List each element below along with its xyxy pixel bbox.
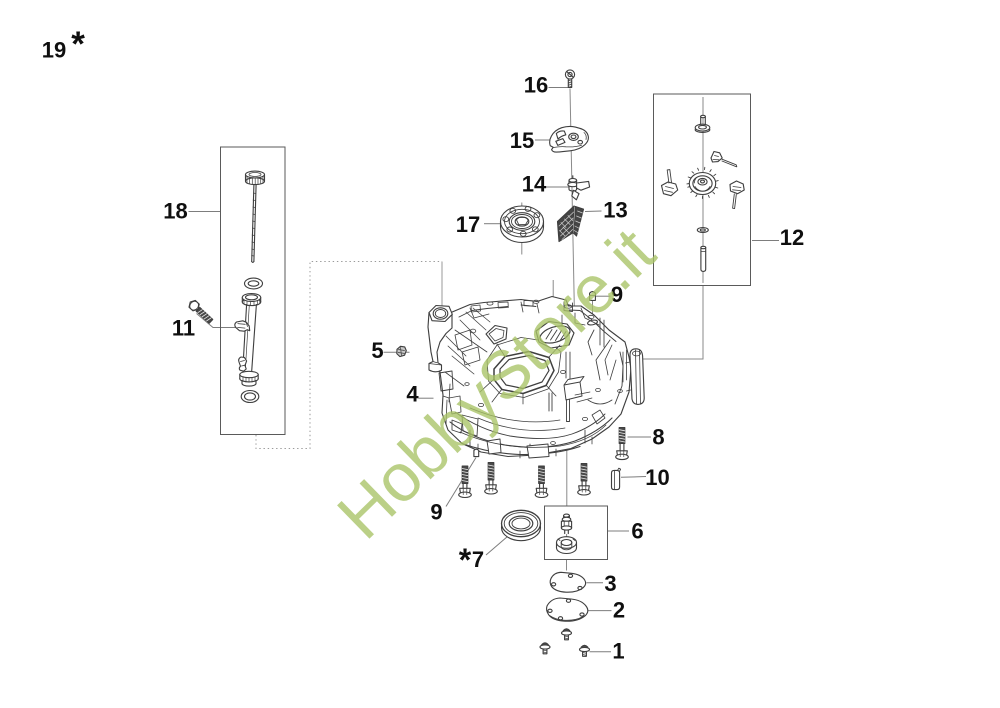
svg-text:18: 18	[163, 199, 187, 224]
svg-text:1: 1	[612, 639, 624, 664]
svg-text:3: 3	[604, 571, 616, 596]
svg-text:17: 17	[456, 212, 480, 237]
svg-text:*: *	[459, 542, 472, 578]
svg-text:11: 11	[172, 316, 195, 341]
svg-text:8: 8	[652, 425, 664, 450]
svg-text:9: 9	[430, 500, 442, 525]
svg-text:*: *	[71, 25, 85, 64]
svg-text:16: 16	[524, 73, 548, 98]
svg-text:6: 6	[631, 519, 643, 544]
svg-text:4: 4	[406, 382, 419, 407]
svg-text:14: 14	[522, 172, 547, 197]
svg-text:2: 2	[613, 598, 625, 623]
svg-text:7: 7	[472, 547, 484, 572]
svg-text:15: 15	[510, 128, 534, 153]
svg-text:19: 19	[42, 38, 66, 63]
svg-text:12: 12	[780, 225, 804, 250]
svg-text:10: 10	[645, 465, 669, 490]
svg-text:5: 5	[371, 338, 383, 363]
